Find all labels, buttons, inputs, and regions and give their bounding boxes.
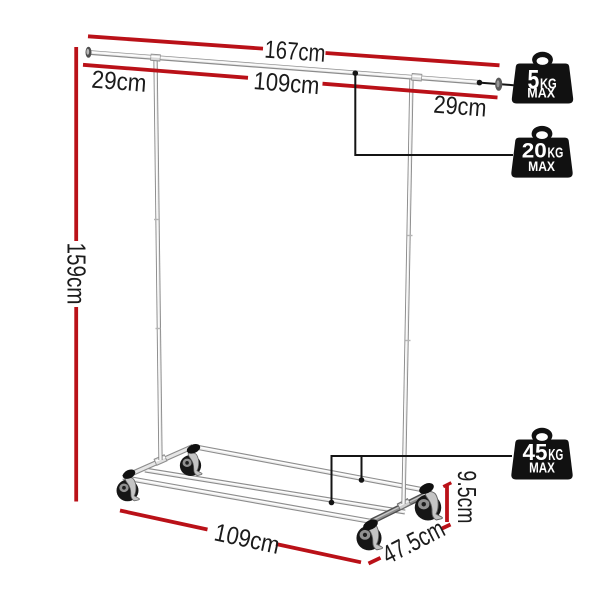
svg-text:167cm: 167cm (264, 36, 327, 68)
svg-text:109cm: 109cm (253, 67, 321, 100)
svg-text:29cm: 29cm (433, 91, 488, 123)
svg-text:29cm: 29cm (91, 66, 148, 98)
svg-text:MAX: MAX (528, 159, 556, 174)
svg-text:MAX: MAX (529, 461, 555, 477)
svg-text:MAX: MAX (527, 86, 555, 101)
svg-text:159cm: 159cm (61, 243, 91, 305)
svg-text:9.5cm: 9.5cm (452, 471, 482, 524)
